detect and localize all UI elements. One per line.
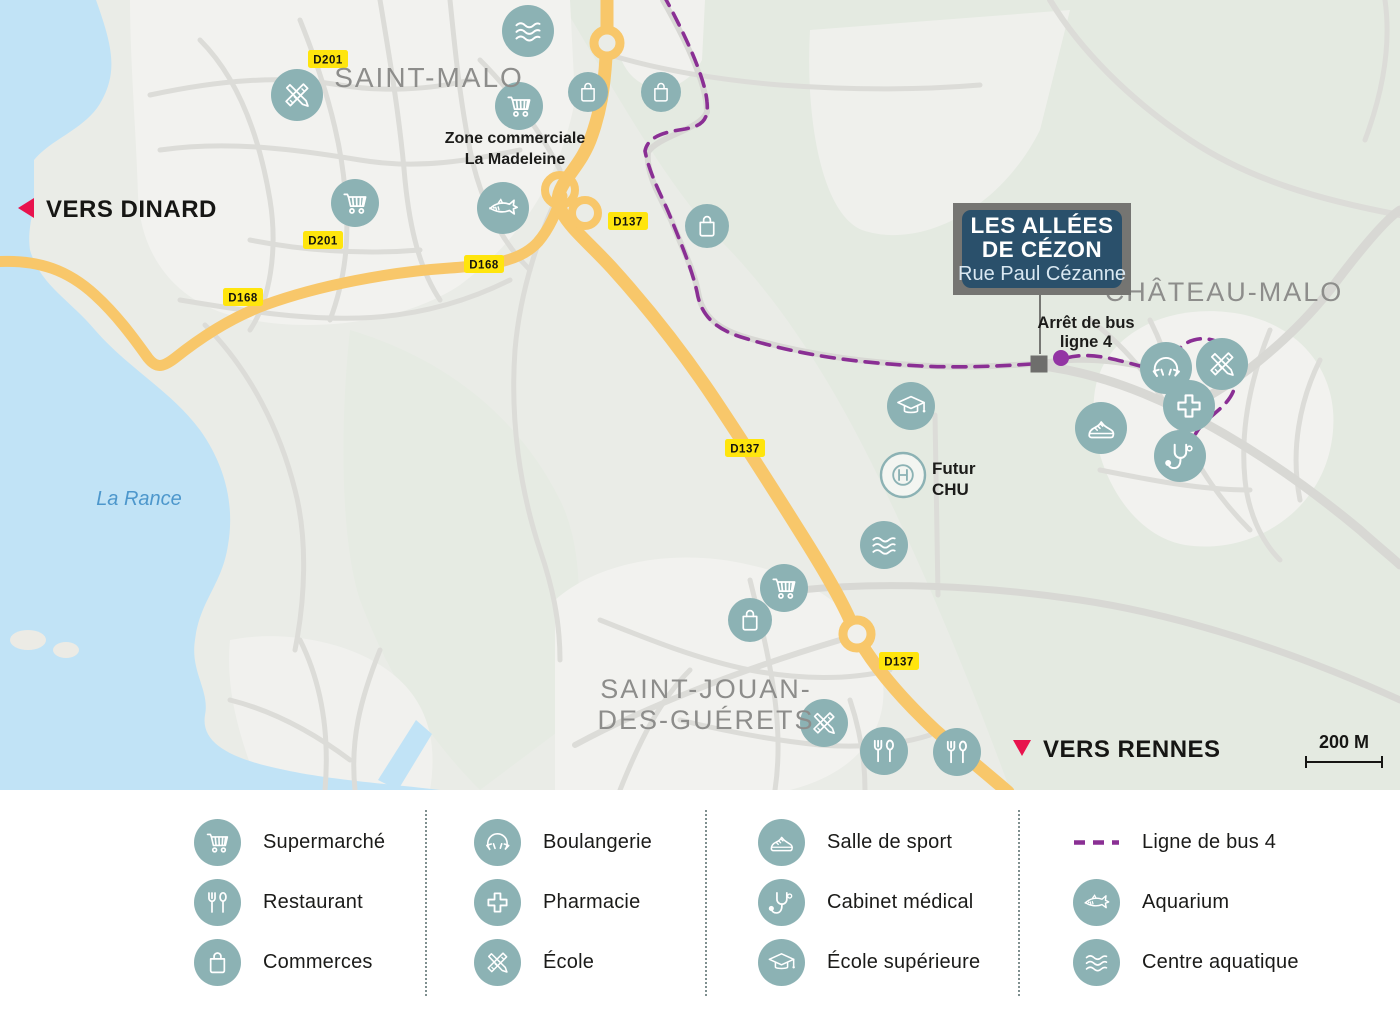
roundabout	[594, 30, 620, 56]
direction-east-label: VERS RENNES	[1043, 736, 1221, 763]
road-badge: D137	[725, 439, 765, 457]
legend-column: BoulangeriePharmacieÉcole	[474, 812, 652, 992]
waves-map-icon	[860, 521, 908, 569]
svg-text:D137: D137	[730, 444, 760, 456]
legend-label: Salle de sport	[827, 831, 952, 854]
project-subtitle: Rue Paul Cézanne	[958, 263, 1126, 285]
bag-map-icon	[728, 598, 772, 642]
project-title-line1: LES ALLÉES	[971, 213, 1114, 238]
legend-item-ligne-de-bus-4: Ligne de bus 4	[1073, 812, 1299, 872]
svg-text:D137: D137	[884, 657, 914, 669]
stethoscope-map-icon	[1154, 430, 1206, 482]
school-map-icon	[271, 69, 323, 121]
legend-item-centre-aquatique: Centre aquatique	[1073, 932, 1299, 992]
legend-label: Restaurant	[263, 891, 363, 914]
bus-stop-dot	[1053, 350, 1069, 366]
map-page: D201D201D168D168D137D137D137 SAINT-MALOC…	[0, 0, 1400, 1022]
waves-icon	[1073, 939, 1120, 986]
legend-label: Boulangerie	[543, 831, 652, 854]
bus-stop-square	[1031, 356, 1048, 373]
sneaker-map-icon	[1075, 402, 1127, 454]
road-badge: D168	[464, 255, 504, 273]
project-label: LES ALLÉES DE CÉZON Rue Paul Cézanne	[953, 203, 1131, 295]
waves-map-icon	[502, 5, 554, 57]
svg-text:D168: D168	[228, 293, 258, 305]
legend-label: Ligne de bus 4	[1142, 831, 1276, 854]
legend: SupermarchéRestaurantCommercesBoulangeri…	[0, 790, 1400, 1022]
legend-label: Aquarium	[1142, 891, 1229, 914]
sneaker-icon	[758, 819, 805, 866]
legend-item-cabinet-m-dical: Cabinet médical	[758, 872, 980, 932]
legend-label: Pharmacie	[543, 891, 640, 914]
legend-divider	[705, 810, 707, 996]
school-map-icon	[1196, 338, 1248, 390]
legend-item--cole: École	[474, 932, 652, 992]
legend-item--cole-sup-rieure: École supérieure	[758, 932, 980, 992]
road-badge: D137	[608, 212, 648, 230]
legend-label: Commerces	[263, 951, 373, 974]
gradcap-icon	[758, 939, 805, 986]
map-label-chateau-malo: CHÂTEAU-MALO	[1105, 276, 1344, 307]
school-icon	[474, 939, 521, 986]
legend-column: Salle de sportCabinet médicalÉcole supér…	[758, 812, 980, 992]
hospital-map-icon	[881, 453, 925, 497]
legend-item-supermarch-: Supermarché	[194, 812, 385, 872]
bag-map-icon	[685, 204, 729, 248]
water-label: La Rance	[96, 488, 182, 510]
legend-item-pharmacie: Pharmacie	[474, 872, 652, 932]
bag-map-icon	[641, 72, 681, 112]
legend-item-boulangerie: Boulangerie	[474, 812, 652, 872]
legend-item-salle-de-sport: Salle de sport	[758, 812, 980, 872]
svg-text:D168: D168	[469, 260, 499, 272]
legend-item-aquarium: Aquarium	[1073, 872, 1299, 932]
legend-column: SupermarchéRestaurantCommerces	[194, 812, 385, 992]
bag-map-icon	[568, 72, 608, 112]
direction-west: VERS DINARD	[18, 196, 217, 223]
map-label-saint-jouan-des-guerets: SAINT-JOUAN-DES-GUÉRETS	[597, 674, 814, 735]
shark-map-icon	[477, 182, 529, 234]
road-badge: D168	[223, 288, 263, 306]
legend-label: École supérieure	[827, 951, 980, 974]
scale-label: 200 M	[1319, 732, 1369, 752]
restaurant-map-icon	[933, 728, 981, 776]
direction-east: VERS RENNES	[1013, 736, 1221, 763]
legend-label: Cabinet médical	[827, 891, 973, 914]
svg-text:D201: D201	[308, 236, 338, 248]
bus-line-sample-icon	[1073, 819, 1120, 866]
bag-icon	[194, 939, 241, 986]
svg-text:D137: D137	[613, 217, 643, 229]
legend-label: Centre aquatique	[1142, 951, 1299, 974]
legend-column: Ligne de bus 4AquariumCentre aquatique	[1073, 812, 1299, 992]
cart-map-icon	[760, 564, 808, 612]
restaurant-icon	[194, 879, 241, 926]
legend-item-commerces: Commerces	[194, 932, 385, 992]
road-badge: D201	[303, 231, 343, 249]
legend-divider	[1018, 810, 1020, 996]
legend-label: Supermarché	[263, 831, 385, 854]
road-badge: D137	[879, 652, 919, 670]
gradcap-map-icon	[887, 382, 935, 430]
cross-map-icon	[1163, 380, 1215, 432]
legend-item-restaurant: Restaurant	[194, 872, 385, 932]
croissant-icon	[474, 819, 521, 866]
project-title-line2: DE CÉZON	[982, 237, 1102, 262]
stethoscope-icon	[758, 879, 805, 926]
legend-divider	[425, 810, 427, 996]
map-canvas: D201D201D168D168D137D137D137 SAINT-MALOC…	[0, 0, 1400, 790]
cross-icon	[474, 879, 521, 926]
legend-label: École	[543, 951, 594, 974]
restaurant-map-icon	[860, 727, 908, 775]
map-label-saint-malo: SAINT-MALO	[334, 62, 524, 93]
direction-west-label: VERS DINARD	[46, 196, 217, 223]
cart-icon	[194, 819, 241, 866]
cart-map-icon	[331, 179, 379, 227]
roundabout	[843, 620, 871, 648]
shark-icon	[1073, 879, 1120, 926]
